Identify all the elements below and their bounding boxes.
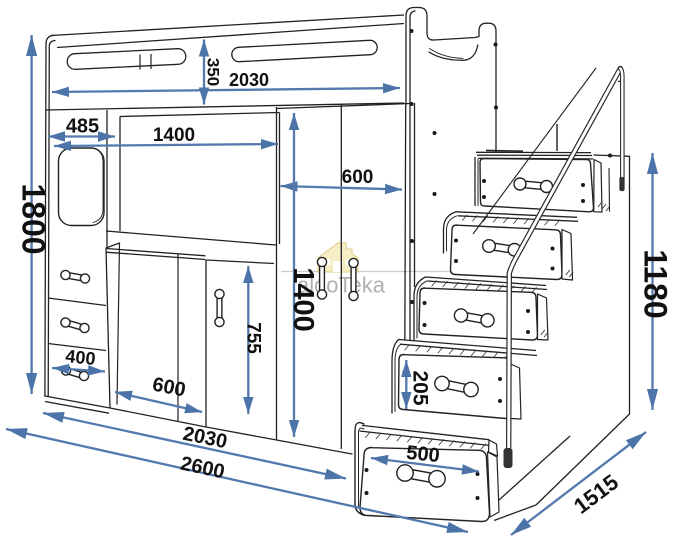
svg-text:205: 205 bbox=[409, 370, 432, 405]
svg-text:600: 600 bbox=[342, 167, 374, 188]
svg-text:1180: 1180 bbox=[638, 249, 674, 318]
svg-text:485: 485 bbox=[66, 116, 99, 138]
svg-text:1800: 1800 bbox=[16, 183, 52, 254]
svg-text:1400: 1400 bbox=[287, 267, 319, 332]
svg-text:350: 350 bbox=[204, 58, 223, 86]
svg-text:400: 400 bbox=[65, 346, 97, 369]
svg-text:1400: 1400 bbox=[153, 125, 195, 146]
svg-text:500: 500 bbox=[405, 442, 440, 467]
svg-text:2030: 2030 bbox=[229, 70, 269, 90]
svg-text:755: 755 bbox=[242, 322, 263, 354]
